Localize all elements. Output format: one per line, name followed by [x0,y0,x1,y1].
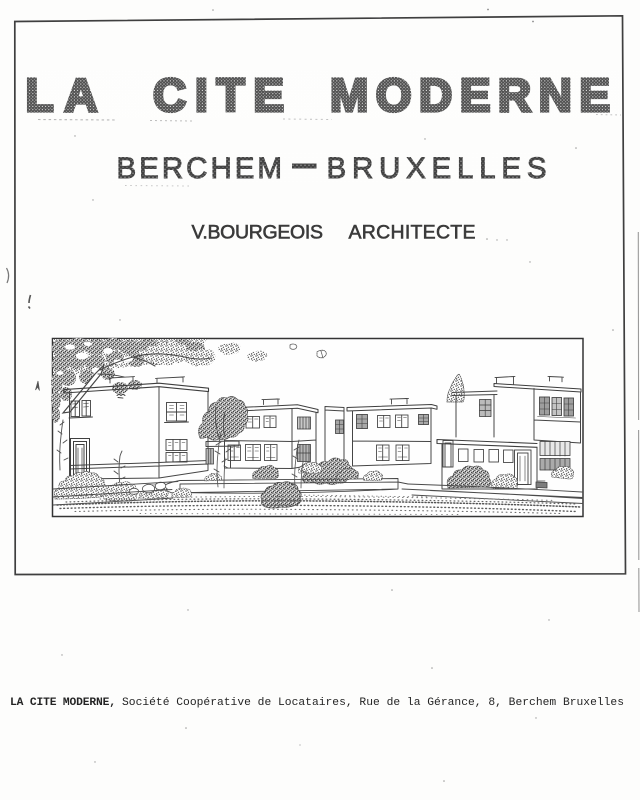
svg-text:V.BOURGEOIS: V.BOURGEOIS [192,222,324,244]
svg-text:ARCHITECTE: ARCHITECTE [349,222,476,244]
svg-text:LA CITE MODERNE,: LA CITE MODERNE, [10,697,116,709]
svg-text:Société Coopérative de Locatai: Société Coopérative de Locataires, Rue d… [122,697,624,709]
